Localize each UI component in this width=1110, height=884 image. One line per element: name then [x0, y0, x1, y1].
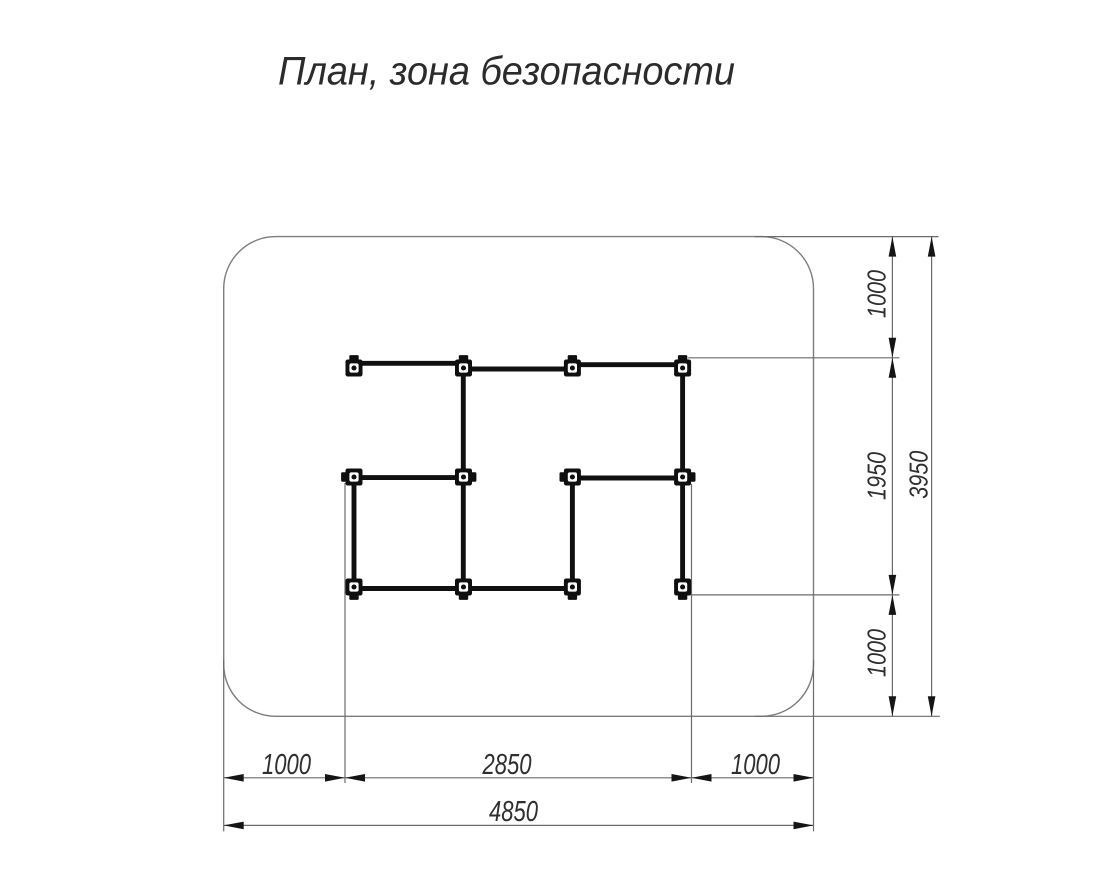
svg-text:2850: 2850 [482, 749, 532, 781]
svg-text:1950: 1950 [862, 452, 892, 500]
svg-text:1000: 1000 [862, 270, 892, 318]
svg-text:1000: 1000 [262, 749, 311, 781]
svg-text:1000: 1000 [731, 749, 780, 781]
svg-text:План, зона безопасности: План, зона безопасности [278, 50, 735, 94]
svg-text:4850: 4850 [489, 796, 538, 828]
svg-text:1000: 1000 [862, 629, 892, 677]
svg-text:3950: 3950 [904, 450, 934, 498]
